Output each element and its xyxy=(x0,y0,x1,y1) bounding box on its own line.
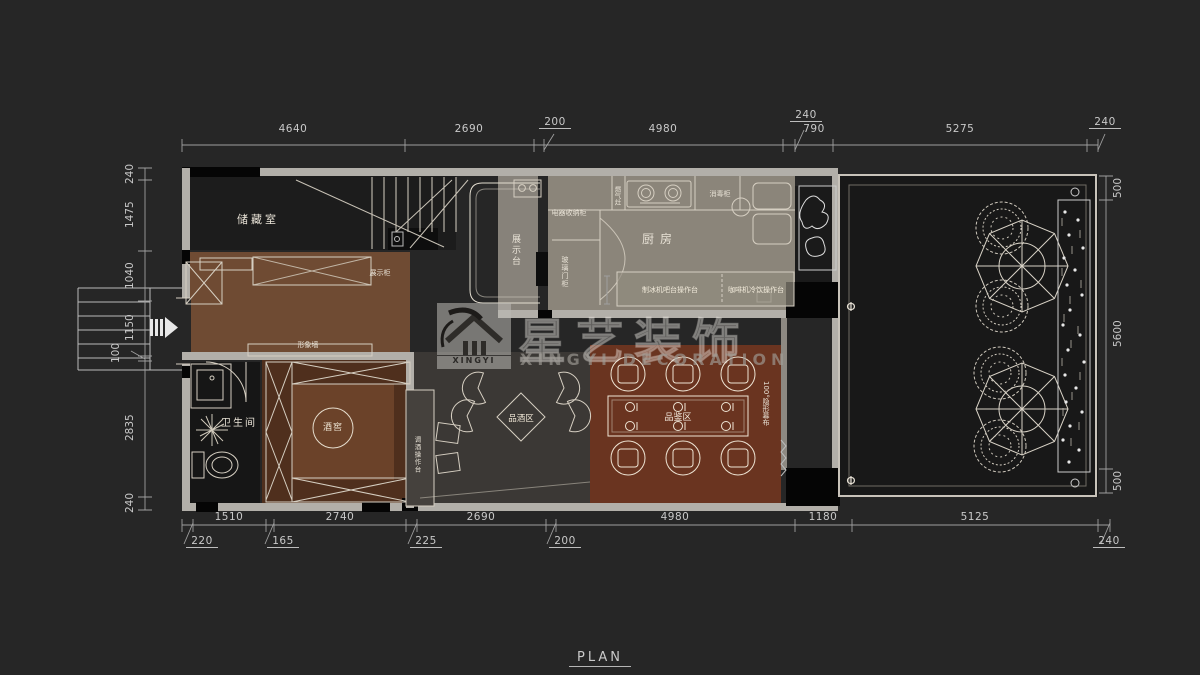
label-bar-zone: 品酒区 xyxy=(497,412,545,424)
label-display-counter: 展示台 xyxy=(509,222,522,278)
dim-left-1475: 1475 xyxy=(122,187,138,243)
label-feature-wall: 形象墙 xyxy=(286,340,330,350)
dim-right-500a: 500 xyxy=(1110,160,1126,216)
wall-left-chunk1 xyxy=(182,250,190,264)
label-appliance-cabinet: 电器收纳柜 xyxy=(550,209,588,217)
room-bar-zone xyxy=(412,352,590,503)
label-phi-lower: Φ xyxy=(842,474,860,488)
label-disinfection-cabinet: 消毒柜 xyxy=(700,189,740,199)
dim-bottom-5125: 5125 xyxy=(935,511,1015,523)
dim-top-240b: 240 xyxy=(1089,116,1121,129)
label-tasting-zone: 品鉴区 xyxy=(654,410,702,423)
label-display-cabinet: 展示柜 xyxy=(358,268,402,278)
dim-bottom-sub-200: 200 xyxy=(549,535,581,548)
dim-bottom-1510: 1510 xyxy=(189,511,269,523)
label-glass-door-cabinet: 玻璃门柜 xyxy=(560,242,570,302)
label-gas-stove: 燃气灶 xyxy=(612,181,622,211)
label-storage: 储藏室 xyxy=(218,211,298,227)
column-block-lower xyxy=(786,468,840,506)
dim-bottom-2690: 2690 xyxy=(441,511,521,523)
stairs-landing xyxy=(388,228,438,250)
label-ice-maker-counter: 制冰机吧台操作台 xyxy=(622,285,718,295)
label-bathroom: 卫生间 xyxy=(208,414,270,429)
dim-right-500b: 500 xyxy=(1110,453,1126,509)
dim-top-790: 790 xyxy=(796,123,832,135)
wall-mid-chunk xyxy=(538,310,552,318)
dim-bottom-sub-165: 165 xyxy=(267,535,299,548)
dim-bottom-sub-220: 220 xyxy=(186,535,218,548)
dim-bottom-2740: 2740 xyxy=(300,511,380,523)
dim-top-200: 200 xyxy=(539,116,571,129)
room-bathroom xyxy=(190,362,260,503)
dim-right-5600: 5600 xyxy=(1110,306,1126,362)
room-tasting-zone xyxy=(590,345,781,503)
dim-left-2835: 2835 xyxy=(122,400,138,456)
wall-corridor-right-panel xyxy=(536,252,548,286)
wall-top-black-chunk xyxy=(182,167,260,177)
label-phi-upper: Φ xyxy=(842,300,860,314)
wall-left-chunk2 xyxy=(182,366,190,378)
dim-top-2690: 2690 xyxy=(429,123,509,135)
dim-top-5275: 5275 xyxy=(920,123,1000,135)
wall-top xyxy=(182,168,838,176)
dim-bottom-sub-240: 240 xyxy=(1093,535,1125,548)
dim-bottom-sub-225: 225 xyxy=(410,535,442,548)
label-kitchen: 厨房 xyxy=(630,230,690,247)
dim-top-4640: 4640 xyxy=(253,123,333,135)
dim-bottom-4980: 4980 xyxy=(635,511,715,523)
dim-bottom-1180: 1180 xyxy=(783,511,863,523)
label-bar-counter: 调酒操作台 xyxy=(412,424,422,486)
label-coffee-counter: 咖啡机冷饮操作台 xyxy=(716,285,796,295)
label-hidden-screen: 100°隐形幕布 xyxy=(761,366,771,440)
wall-bottom xyxy=(182,503,838,511)
dim-top-4980: 4980 xyxy=(623,123,703,135)
plan-title: PLAN xyxy=(0,646,1200,665)
dim-left-1040: 1040 xyxy=(122,248,138,304)
dim-left-240b: 240 xyxy=(122,475,138,531)
label-wine-cellar: 酒窖 xyxy=(313,420,353,433)
room-courtyard xyxy=(840,176,1098,497)
dim-top-240a: 240 xyxy=(790,109,822,122)
wall-cellar-top xyxy=(182,352,410,360)
floorplan-canvas: 4640 2690 200 4980 240 790 5275 240 240 … xyxy=(0,0,1200,675)
wall-glass-partition xyxy=(781,318,787,470)
wall-indoor-outdoor xyxy=(832,176,840,506)
dim-left-1150: 1150 xyxy=(122,300,138,356)
dim-left-100: 100 xyxy=(108,330,124,376)
plan-title-text: PLAN xyxy=(569,650,631,667)
